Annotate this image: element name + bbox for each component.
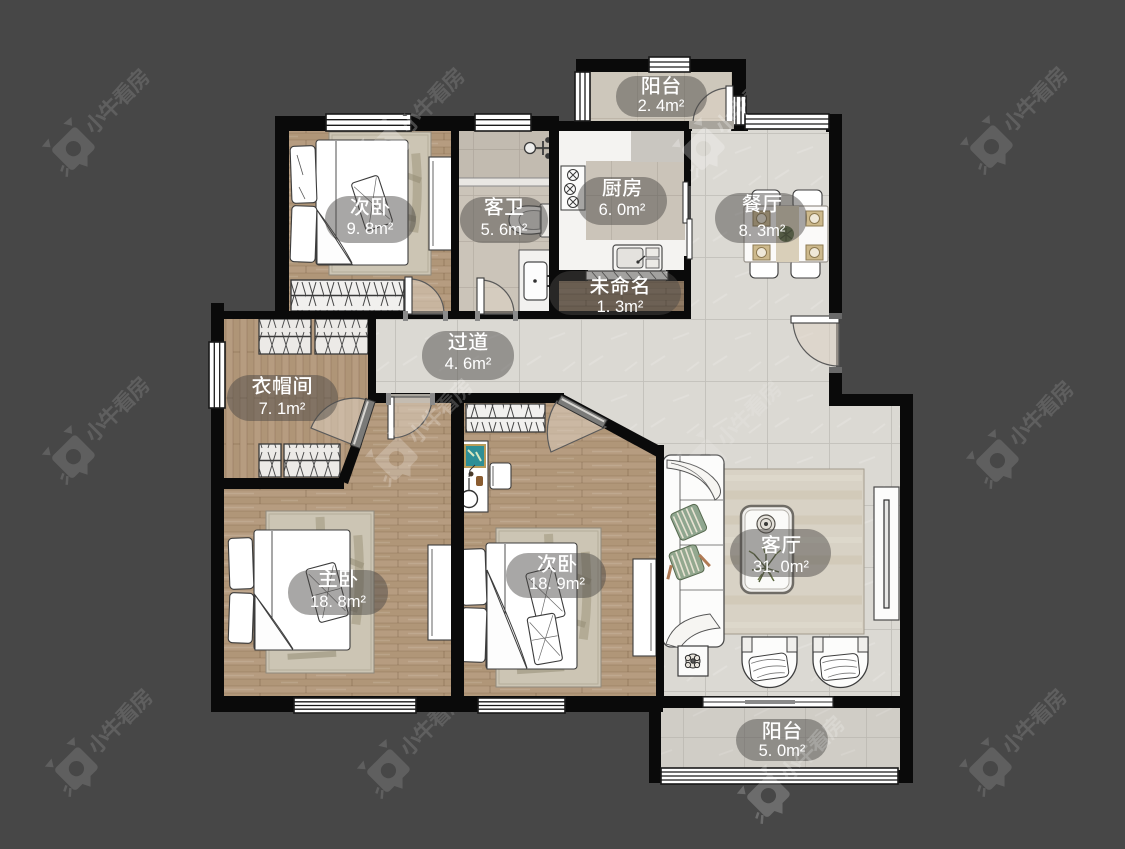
svg-text:7. 1m²: 7. 1m² — [259, 400, 306, 418]
svg-text:9. 8m²: 9. 8m² — [347, 220, 394, 238]
svg-text:4. 6m²: 4. 6m² — [445, 355, 492, 373]
svg-text:5. 6m²: 5. 6m² — [481, 221, 528, 239]
svg-text:8. 3m²: 8. 3m² — [739, 222, 786, 240]
svg-text:2. 4m²: 2. 4m² — [638, 97, 685, 115]
svg-text:6. 0m²: 6. 0m² — [599, 201, 646, 219]
svg-text:1. 3m²: 1. 3m² — [597, 298, 644, 316]
svg-text:18. 9m²: 18. 9m² — [529, 575, 585, 593]
svg-text:5. 0m²: 5. 0m² — [759, 742, 806, 760]
svg-text:31. 0m²: 31. 0m² — [753, 558, 809, 576]
svg-text:18. 8m²: 18. 8m² — [310, 593, 366, 611]
